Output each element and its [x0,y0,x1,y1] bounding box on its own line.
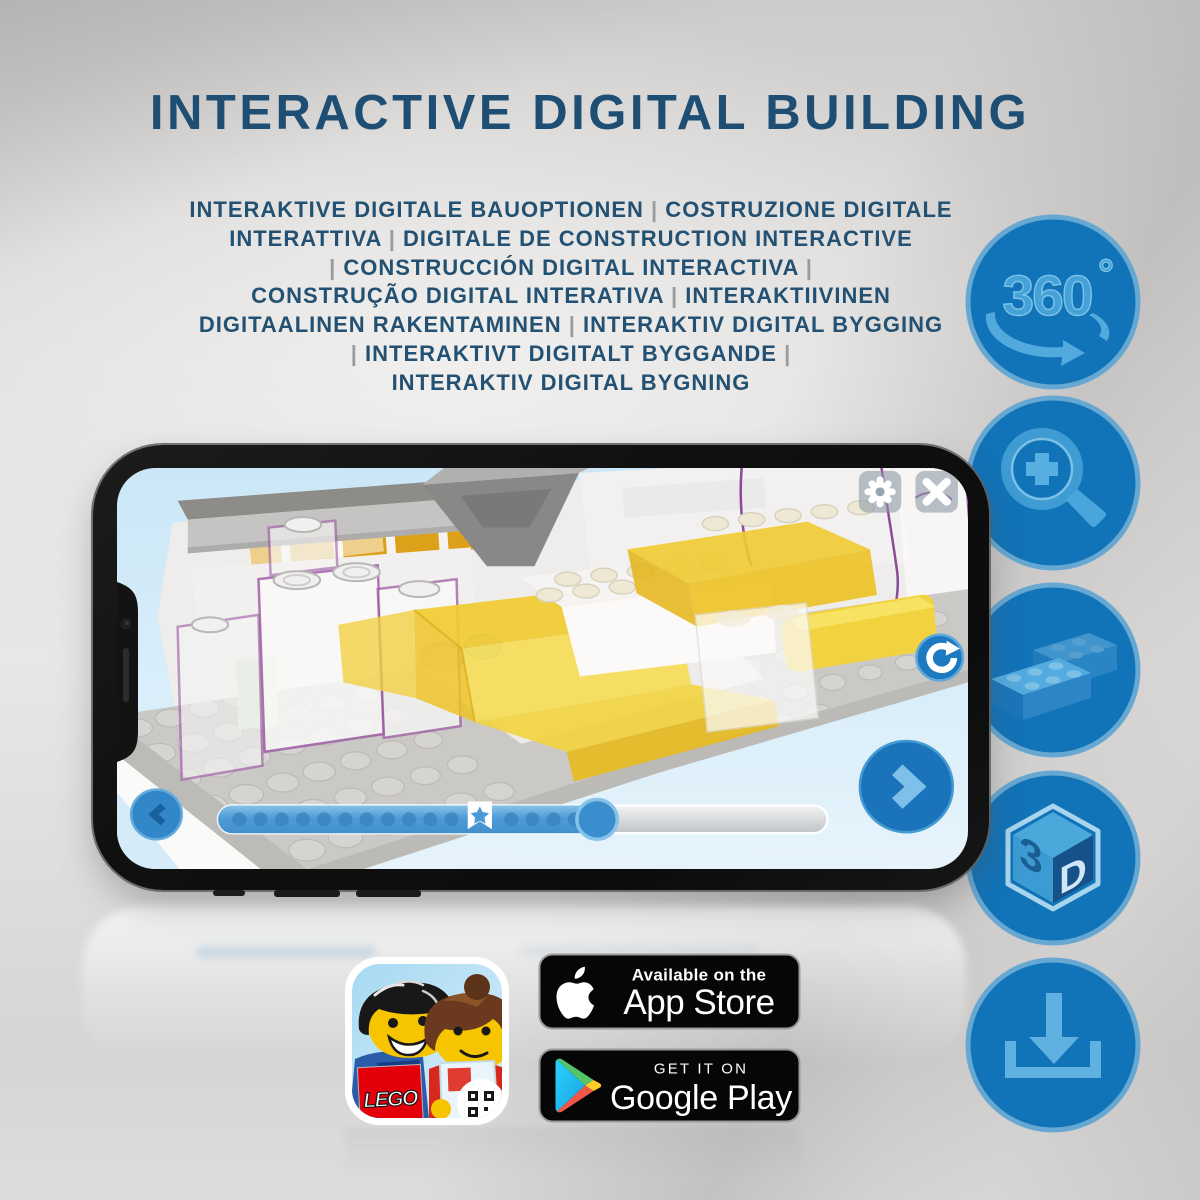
svg-text:Available on the: Available on the [632,966,767,985]
svg-text:°: ° [1098,252,1114,296]
svg-text:App Store: App Store [623,983,774,1022]
svg-text:Google Play: Google Play [610,1079,792,1117]
svg-text:360: 360 [1002,264,1091,328]
svg-text:LEGO: LEGO [363,1087,419,1113]
svg-text:GET IT ON: GET IT ON [654,1061,748,1078]
